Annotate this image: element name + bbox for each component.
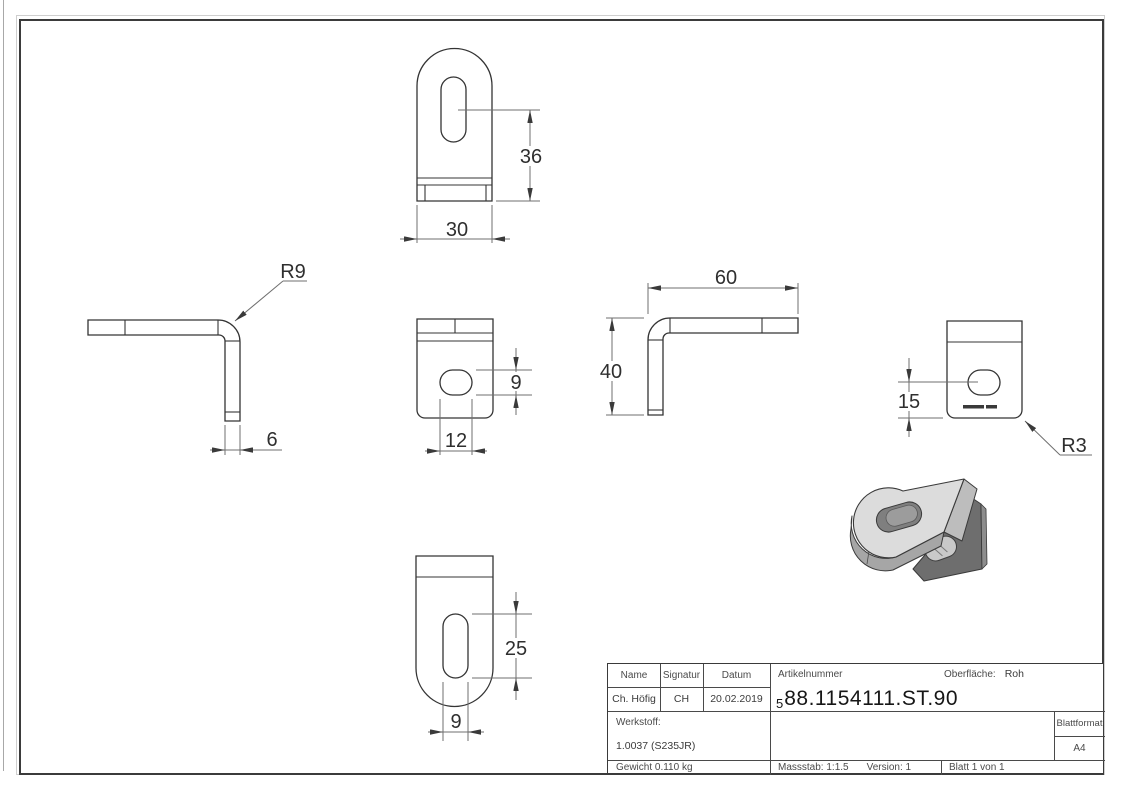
dimension-label-60: 60	[715, 267, 737, 289]
version-value: Version: 1	[867, 762, 911, 773]
surface-field: Oberfläche: Roh	[944, 664, 1094, 684]
dimension-label-40: 40	[600, 361, 622, 383]
bottom-view	[416, 556, 493, 707]
angle-view-dimensions	[606, 283, 798, 415]
date-value: 20.02.2019	[703, 687, 770, 711]
drawing-sheet: 36 30 6 R9	[0, 0, 1123, 794]
front-view	[417, 319, 493, 418]
dimension-label-12: 12	[445, 430, 467, 452]
angle-view-tangent-lines	[648, 318, 762, 410]
front-view-bend-lines	[417, 319, 493, 341]
signature-header: Signatur	[660, 664, 703, 687]
isometric-view	[850, 479, 987, 581]
title-block: Name Signatur Datum Artikelnummer Oberfl…	[607, 663, 1104, 774]
side-view-tangent-lines	[125, 320, 240, 412]
front-view-dimensions	[425, 348, 532, 455]
article-number-value: 5 88.1154111.ST.90	[776, 687, 958, 711]
side-view	[88, 320, 240, 421]
radius-label-r9: R9	[280, 261, 306, 283]
side-view-outline	[88, 320, 240, 421]
surface-label: Oberfläche:	[944, 669, 996, 680]
top-view	[417, 49, 492, 202]
material-value: 1.0037 (S235JR)	[616, 738, 766, 754]
name-header: Name	[608, 664, 660, 687]
dimension-label-15: 15	[898, 391, 920, 413]
sheet-field: Blatt 1 von 1	[949, 760, 1099, 775]
grid-line	[941, 760, 942, 775]
name-value: Ch. Höfig	[608, 687, 660, 711]
bottom-view-slot	[443, 614, 468, 678]
scale-value: Massstab: 1:1.5	[778, 762, 849, 773]
sheet-format-value: A4	[1054, 736, 1105, 760]
dimension-label-30: 30	[446, 219, 468, 241]
material-label: Werkstoff:	[616, 714, 766, 730]
surface-value: Roh	[1005, 668, 1024, 680]
grid-line	[608, 711, 1105, 712]
article-number-prefix: 5	[776, 696, 783, 711]
dimension-label-9-bottom: 9	[450, 711, 461, 733]
scale-field: Massstab: 1:1.5 Version: 1	[778, 760, 938, 775]
etched-marking	[963, 405, 997, 409]
radius-label-r3: R3	[1061, 435, 1087, 457]
weight-field: Gewicht 0.110 kg	[616, 760, 766, 775]
iso-plate-edge	[981, 504, 987, 569]
signature-value: CH	[660, 687, 703, 711]
dimension-label-9-front: 9	[510, 372, 521, 394]
top-view-bend-lines	[417, 178, 492, 201]
sheet-format-label: Blattformat	[1054, 711, 1105, 736]
front-view-outline	[417, 319, 493, 418]
dimension-label-6: 6	[266, 429, 277, 451]
back-view	[947, 321, 1022, 418]
top-view-dimensions	[400, 110, 540, 243]
grid-line	[770, 664, 771, 775]
article-number-text: 88.1154111.ST.90	[784, 687, 958, 711]
angle-view	[648, 318, 798, 415]
bottom-view-outline	[416, 556, 493, 707]
dimension-label-36: 36	[520, 146, 542, 168]
front-view-slot	[440, 370, 472, 395]
article-number-header: Artikelnummer	[778, 664, 898, 684]
date-header: Datum	[703, 664, 770, 687]
dimension-label-25: 25	[505, 638, 527, 660]
